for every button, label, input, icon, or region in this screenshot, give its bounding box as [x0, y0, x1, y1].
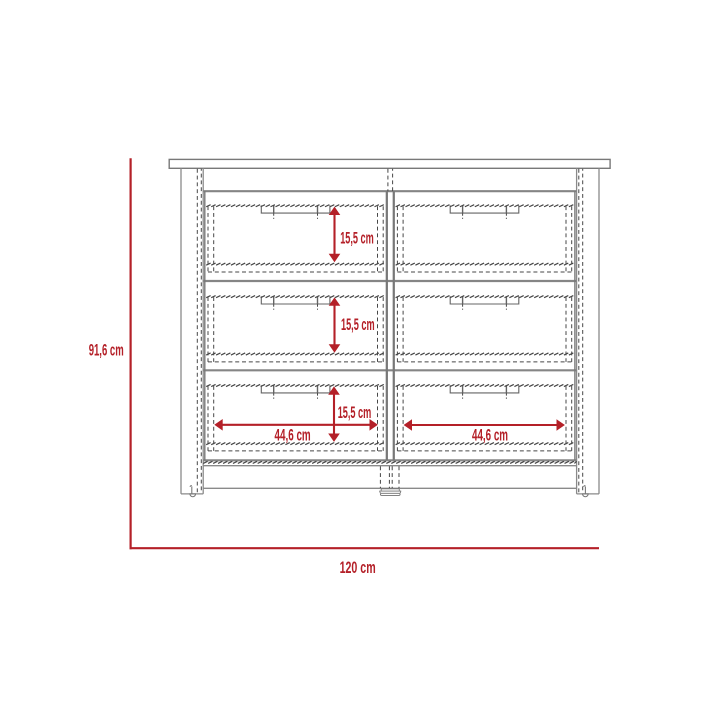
- svg-text:91,6 cm: 91,6 cm: [89, 342, 124, 360]
- svg-text:44,6 cm: 44,6 cm: [472, 427, 508, 445]
- svg-text:15,5 cm: 15,5 cm: [338, 404, 372, 422]
- svg-text:120 cm: 120 cm: [340, 559, 376, 577]
- svg-text:15,5 cm: 15,5 cm: [340, 230, 374, 248]
- svg-text:15,5 cm: 15,5 cm: [341, 316, 375, 334]
- svg-text:44,6 cm: 44,6 cm: [275, 427, 311, 445]
